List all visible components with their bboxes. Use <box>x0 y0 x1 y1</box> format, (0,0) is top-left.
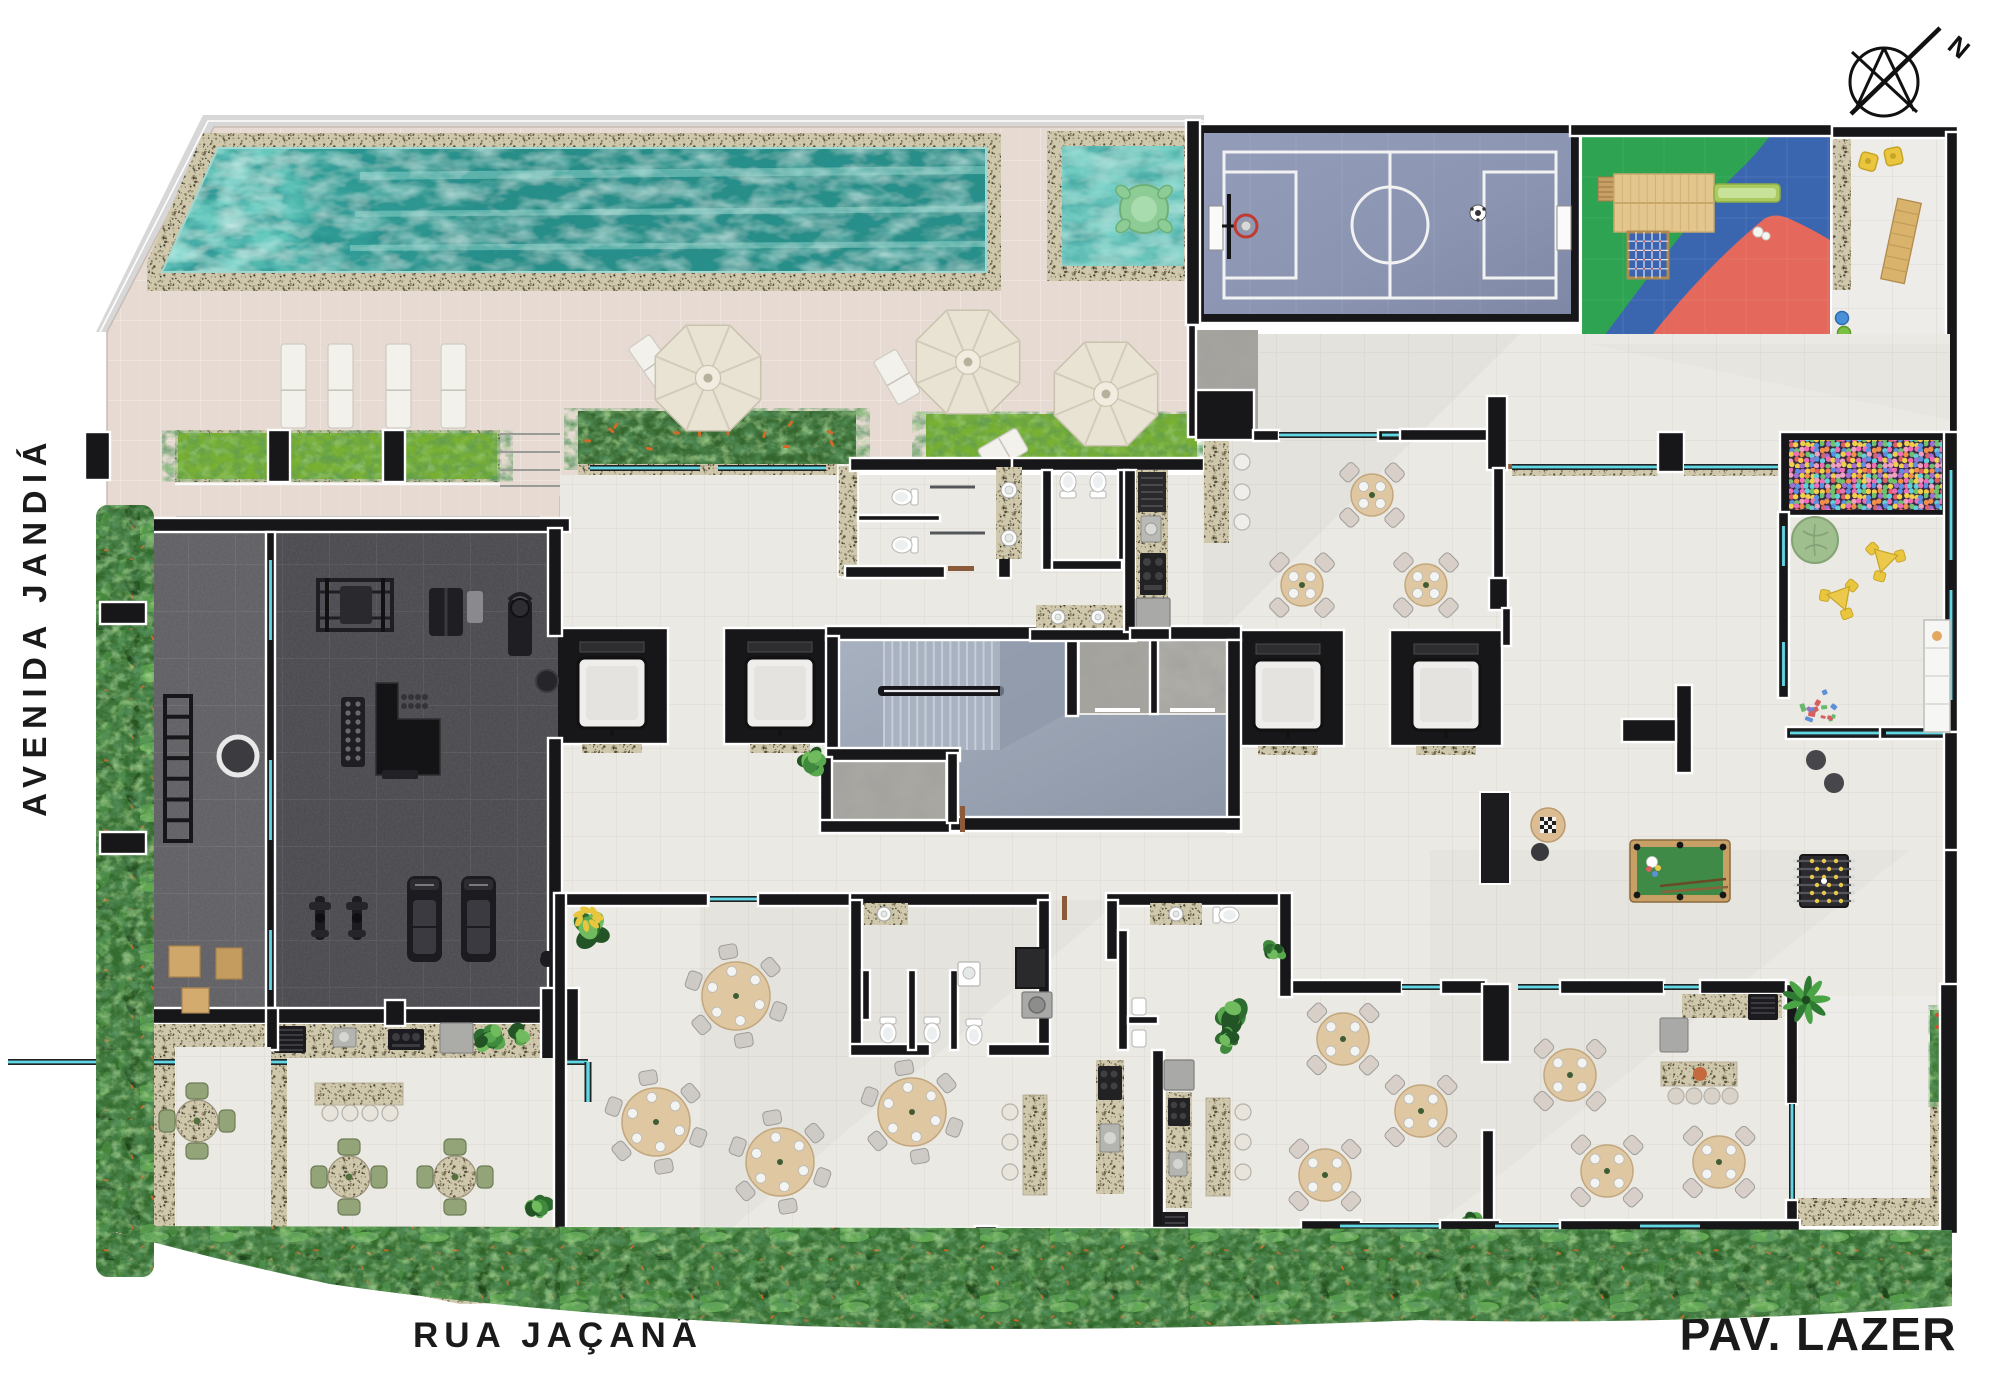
svg-text:AVENIDA JANDIÁ: AVENIDA JANDIÁ <box>16 435 53 817</box>
svg-text:RUA JAÇANÃ: RUA JAÇANÃ <box>413 1316 703 1355</box>
